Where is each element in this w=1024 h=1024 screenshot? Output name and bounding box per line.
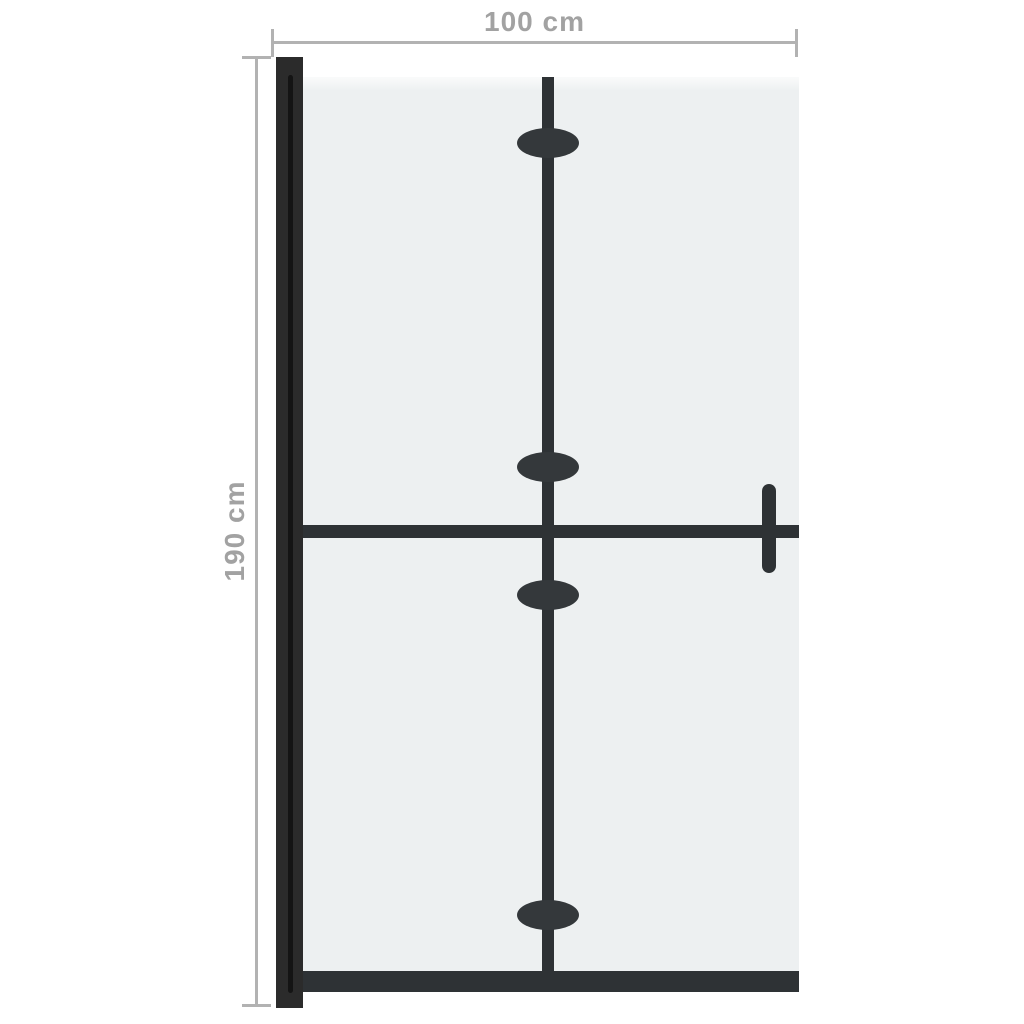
- width-dimension-line: [272, 41, 797, 44]
- hinge-icon: [517, 128, 579, 158]
- height-dimension-tick-bottom: [242, 1004, 271, 1007]
- bottom-rail: [303, 971, 799, 992]
- wall-profile-groove: [288, 75, 293, 993]
- hinge-icon: [517, 900, 579, 930]
- wall-profile: [276, 57, 303, 1008]
- fold-line: [542, 77, 554, 971]
- support-bar-bracket: [762, 484, 776, 573]
- diagram-canvas: 100 cm 190 cm: [0, 0, 1024, 1024]
- hinge-icon: [517, 580, 579, 610]
- support-bar: [303, 525, 799, 538]
- height-dimension-tick-top: [242, 56, 271, 59]
- hinge-icon: [517, 452, 579, 482]
- height-dimension-label: 190 cm: [219, 481, 251, 582]
- height-dimension-line: [255, 57, 258, 1006]
- width-dimension-label: 100 cm: [272, 6, 797, 38]
